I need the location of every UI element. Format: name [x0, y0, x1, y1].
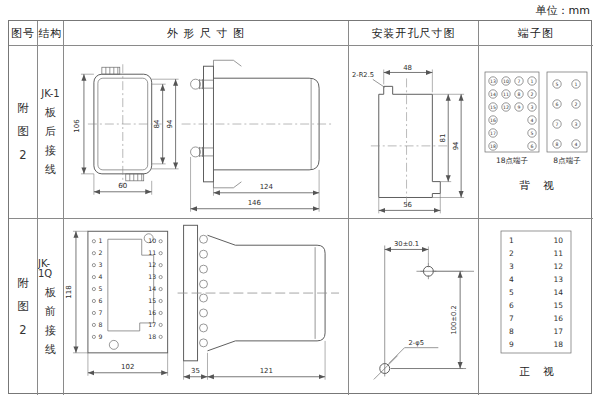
term-list-right: 13 — [553, 275, 563, 284]
unit-label: 单位：mm — [536, 3, 590, 18]
header-mounting-label: 安装开孔尺寸图 — [372, 26, 456, 41]
term-list-right: 17 — [553, 327, 563, 336]
header-mounting: 安装开孔尺寸图 — [349, 21, 479, 46]
front-term: 14 — [148, 285, 156, 292]
front-term: 3 — [98, 261, 102, 268]
hole-diameter-note: 2-φ5 — [409, 339, 424, 347]
term-list-right: 12 — [553, 262, 563, 271]
row1-struct-char-4: 线 — [45, 164, 56, 175]
front-term: 18 — [148, 333, 156, 340]
row1-mounting-cell: 2-R2.5 48 81 94 56 — [349, 46, 479, 219]
front-term: 9 — [98, 333, 102, 340]
row2-fig-char-1: 附 — [17, 278, 29, 290]
t18-cell: 17 — [490, 130, 496, 135]
front-term: 15 — [148, 297, 156, 304]
row1-struct-char-2: 后 — [45, 126, 56, 137]
row1-terminal-cell: 13 10 7 1 14 11 8 2 15 12 9 3 16 4 17 5 … — [479, 46, 593, 219]
row2-front-view: 1 2 3 4 5 6 7 8 9 10 11 12 13 14 15 16 1… — [65, 231, 167, 375]
term-list-right: 15 — [553, 301, 563, 310]
header-fig-no-label: 图号 — [11, 26, 35, 41]
row2-structure: JK-1Q 板 前 接 线 — [38, 255, 63, 359]
dim-front-height-2: 118 — [65, 285, 73, 298]
t18-cell: 18 — [490, 143, 496, 148]
term-list-left: 5 — [509, 288, 514, 297]
dim-front-width-2: 102 — [121, 363, 134, 371]
row1-structure: JK-1 板 后 接 线 — [41, 85, 59, 179]
front-term: 5 — [98, 285, 102, 292]
front-term: 10 — [148, 237, 156, 244]
term-list-right: 14 — [553, 288, 563, 297]
term-list-left: 9 — [509, 340, 514, 349]
terminal-18pt-box: 13 10 7 1 14 11 8 2 15 12 9 3 16 4 17 5 … — [485, 72, 539, 152]
row2-fig-char-3: 2 — [19, 325, 26, 337]
header-outline-label: 外 形 尺 寸 图 — [167, 26, 245, 41]
row1-outline-drawing: 106 84 94 60 — [64, 46, 348, 219]
t18-cell: 10 — [503, 78, 509, 83]
row2-fig-char-2: 图 — [17, 301, 29, 313]
header-structure: 结构 — [38, 21, 64, 46]
t18-cell: 15 — [490, 104, 496, 109]
terminal-8pt-caption: 8点端子 — [553, 156, 581, 165]
row1-view-label: 背 视 — [519, 179, 558, 191]
dim-side-body-2: 121 — [260, 367, 273, 375]
t8-cell: 8 — [556, 141, 559, 146]
t18-cell: 6 — [531, 143, 534, 148]
front-term: 4 — [98, 273, 102, 280]
row2-struct-char-4: 线 — [45, 344, 56, 355]
row1-fig-char-2: 图 — [17, 126, 29, 138]
row2-struct-char-2: 前 — [45, 306, 56, 317]
header-outline: 外 形 尺 寸 图 — [64, 21, 349, 46]
t8-cell: 3 — [575, 121, 578, 126]
dim-mount-full-height: 94 — [452, 140, 460, 149]
row1-outline-cell: 106 84 94 60 — [64, 46, 349, 219]
row1-struct-char-3: 接 — [45, 145, 56, 156]
dim-mount-inner-height: 81 — [439, 133, 447, 142]
term-list-left: 3 — [509, 262, 514, 271]
dim-mount-top-width: 48 — [403, 64, 412, 72]
row2-terminal-diagram: 110 211 312 413 514 615 716 817 918 正 视 — [479, 219, 593, 395]
term-list-left: 1 — [509, 236, 514, 245]
header-fig-no: 图号 — [9, 21, 38, 46]
front-term: 2 — [98, 249, 102, 256]
row2-struct-char-3: 接 — [45, 325, 56, 336]
front-term: 7 — [98, 309, 102, 316]
row1-struct-char-1: 板 — [45, 107, 56, 118]
t18-cell: 11 — [503, 91, 509, 96]
header-terminal: 端子图 — [479, 21, 593, 46]
front-term: 16 — [148, 309, 156, 316]
header-terminal-label: 端子图 — [518, 26, 554, 41]
row2-terminal-cell: 110 211 312 413 514 615 716 817 918 正 视 — [479, 219, 593, 395]
row2-mounting-drawing: 30±0.1 100±0.2 2-φ5 — [349, 219, 478, 395]
dim-hole-spacing-v: 100±0.2 — [450, 305, 458, 334]
terminal-8pt-box: 5 1 6 2 7 3 8 4 — [547, 72, 587, 152]
dim-side-total: 146 — [248, 199, 261, 207]
row2-mounting-cell: 30±0.1 100±0.2 2-φ5 — [349, 219, 479, 395]
front-term: 1 — [98, 237, 102, 244]
dim-front-outer-height: 94 — [166, 119, 174, 128]
row2-outline-cell: 1 2 3 4 5 6 7 8 9 10 11 12 13 14 15 16 1… — [64, 219, 349, 395]
dim-front-width: 60 — [118, 182, 127, 190]
row1-fig-no-cell: 附 图 2 — [9, 46, 38, 219]
row2-outline-drawing: 1 2 3 4 5 6 7 8 9 10 11 12 13 14 15 16 1… — [64, 219, 348, 395]
t8-cell: 5 — [556, 81, 559, 86]
t18-cell: 7 — [518, 78, 521, 83]
spec-table: 图号 结构 外 形 尺 寸 图 安装开孔尺寸图 端子图 附 图 2 JK-1 板… — [8, 20, 592, 394]
term-list-right: 10 — [553, 236, 563, 245]
t18-cell: 12 — [503, 104, 509, 109]
t8-cell: 2 — [575, 101, 578, 106]
t18-cell: 14 — [490, 91, 496, 96]
header-structure-label: 结构 — [39, 26, 63, 41]
term-list-right: 11 — [553, 249, 563, 258]
dim-front-inner-height: 84 — [153, 119, 161, 128]
t18-cell: 1 — [531, 78, 534, 83]
dim-front-height: 106 — [73, 119, 81, 132]
term-list-right: 18 — [553, 340, 563, 349]
row2-side-view: 35 121 — [178, 225, 339, 379]
row1-model-label: JK-1 — [41, 89, 59, 99]
front-term: 17 — [148, 321, 156, 328]
dim-mount-bottom-width: 56 — [403, 200, 412, 208]
row2-structure-cell: JK-1Q 板 前 接 线 — [38, 219, 64, 395]
t18-cell: 3 — [531, 104, 534, 109]
t8-cell: 7 — [556, 121, 559, 126]
row1-fig-char-1: 附 — [17, 103, 29, 115]
front-term: 13 — [148, 273, 156, 280]
row1-fig-no: 附 图 2 — [17, 97, 29, 168]
term-list-right: 16 — [553, 314, 563, 323]
term-list-left: 8 — [509, 327, 514, 336]
row1-mounting-drawing: 2-R2.5 48 81 94 56 — [349, 46, 478, 219]
t8-cell: 4 — [575, 141, 578, 146]
term-list-left: 6 — [509, 301, 514, 310]
t18-cell: 9 — [518, 104, 521, 109]
t18-cell: 2 — [531, 91, 534, 96]
front-term: 11 — [148, 249, 156, 256]
term-list-left: 2 — [509, 249, 514, 258]
t8-cell: 1 — [575, 81, 578, 86]
row1-terminal-diagram: 13 10 7 1 14 11 8 2 15 12 9 3 16 4 17 5 … — [479, 46, 593, 219]
t18-cell: 13 — [490, 78, 496, 83]
term-list-left: 4 — [509, 275, 514, 284]
t18-cell: 4 — [531, 117, 534, 122]
t18-cell: 16 — [490, 117, 496, 122]
mounting-corner-note: 2-R2.5 — [352, 71, 374, 79]
row1-side-view: 124 146 — [182, 60, 333, 211]
dim-side-flange: 35 — [191, 367, 200, 375]
row2-view-label: 正 视 — [519, 365, 558, 377]
terminal-18pt-caption: 18点端子 — [496, 156, 529, 165]
row1-fig-char-3: 2 — [19, 150, 26, 162]
t18-cell: 8 — [518, 91, 521, 96]
dim-hole-spacing-h: 30±0.1 — [394, 240, 419, 248]
front-term: 6 — [98, 297, 102, 304]
row2-fig-no-cell: 附 图 2 — [9, 219, 38, 395]
row2-struct-char-1: 板 — [45, 287, 56, 298]
t8-cell: 6 — [556, 101, 559, 106]
row2-model-label: JK-1Q — [38, 259, 63, 279]
dim-side-body: 124 — [260, 183, 274, 191]
front-term: 12 — [148, 261, 156, 268]
row2-fig-no: 附 图 2 — [17, 272, 29, 343]
term-list-left: 7 — [509, 314, 514, 323]
row1-structure-cell: JK-1 板 后 接 线 — [38, 46, 64, 219]
front-term: 8 — [98, 321, 102, 328]
row1-front-view: 106 84 94 60 — [73, 64, 179, 195]
t18-cell: 5 — [531, 130, 534, 135]
